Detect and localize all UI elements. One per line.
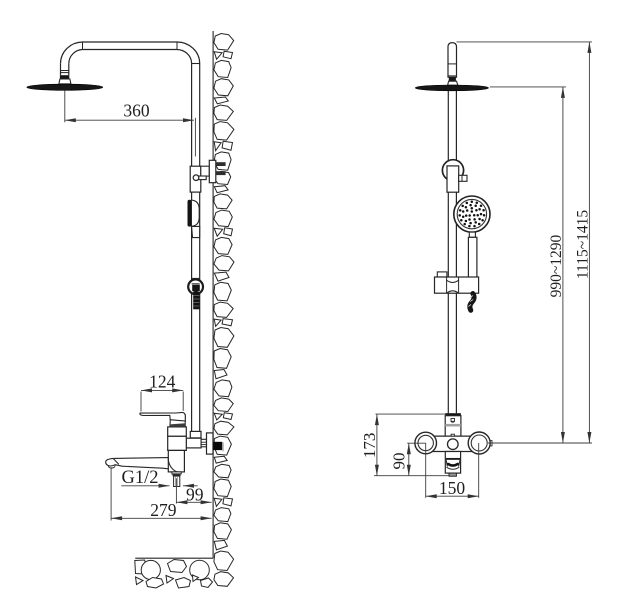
svg-text:173: 173 <box>360 433 379 459</box>
svg-text:90: 90 <box>390 453 409 470</box>
svg-text:150: 150 <box>439 478 466 498</box>
svg-text:1115~1415: 1115~1415 <box>574 210 591 279</box>
svg-text:360: 360 <box>123 101 150 121</box>
svg-text:99: 99 <box>186 485 204 505</box>
svg-text:990~1290: 990~1290 <box>548 234 565 297</box>
svg-text:279: 279 <box>150 500 177 520</box>
svg-text:124: 124 <box>149 372 176 392</box>
svg-text:G1/2: G1/2 <box>122 468 159 488</box>
